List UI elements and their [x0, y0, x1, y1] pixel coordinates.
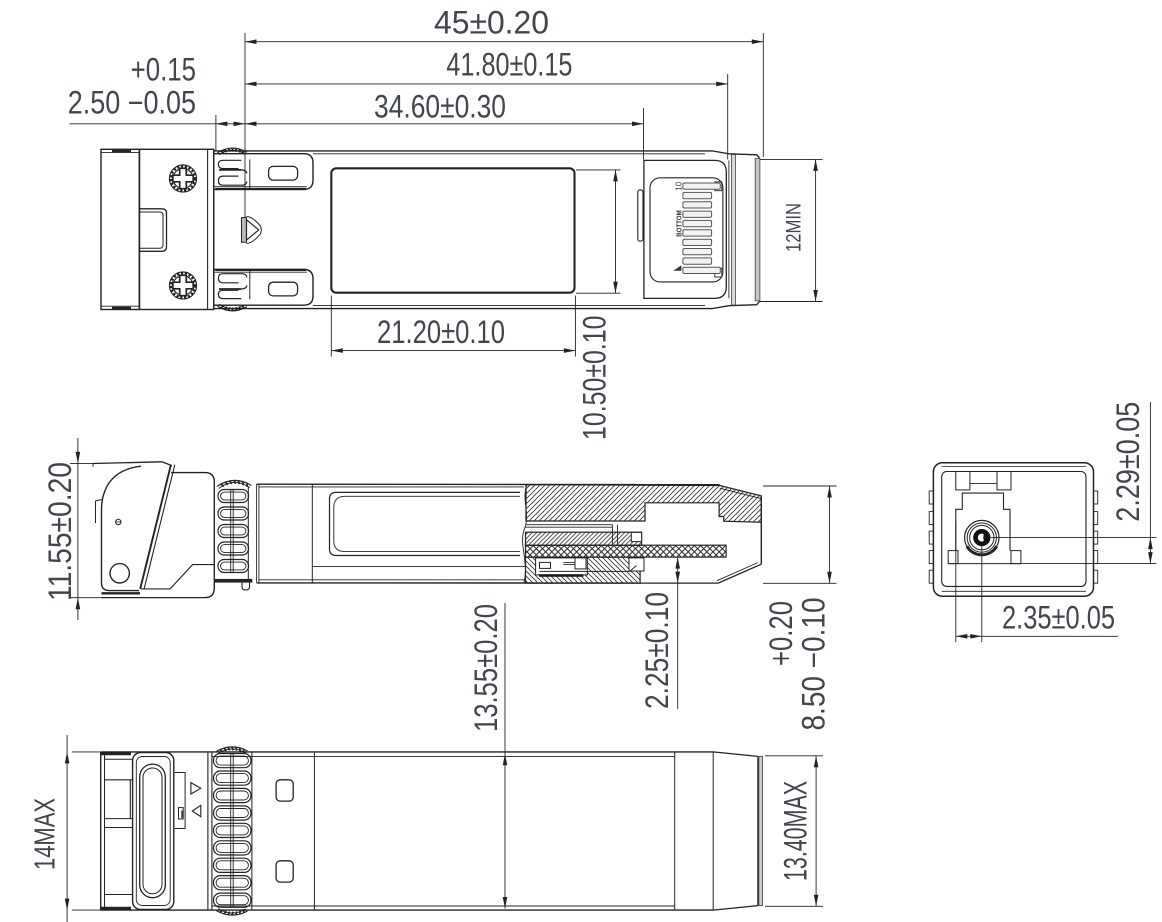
svg-text:10.50±0.10: 10.50±0.10	[577, 316, 613, 441]
svg-text:11.55±0.20: 11.55±0.20	[42, 462, 78, 601]
svg-text:8.50 −0.10: 8.50 −0.10	[796, 598, 832, 731]
svg-text:13.55±0.20: 13.55±0.20	[468, 604, 504, 732]
svg-text:+0.15: +0.15	[131, 51, 196, 87]
svg-text:12MIN: 12MIN	[783, 203, 806, 252]
svg-text:2.25±0.10: 2.25±0.10	[639, 592, 675, 709]
svg-text:2.29±0.05: 2.29±0.05	[1110, 402, 1146, 522]
svg-text:45±0.20: 45±0.20	[434, 5, 549, 41]
svg-text:21.20±0.10: 21.20±0.10	[377, 314, 505, 350]
svg-text:+0.20: +0.20	[763, 601, 799, 666]
svg-text:BOTTOM: BOTTOM	[677, 210, 684, 237]
svg-text:13.40MAX: 13.40MAX	[778, 781, 814, 881]
svg-text:14MAX: 14MAX	[30, 798, 62, 870]
svg-text:34.60±0.30: 34.60±0.30	[374, 89, 506, 125]
svg-text:41.80±0.15: 41.80±0.15	[446, 47, 572, 83]
svg-text:2.50 −0.05: 2.50 −0.05	[68, 84, 196, 120]
svg-text:2.35±0.05: 2.35±0.05	[1002, 600, 1115, 636]
svg-text:10: 10	[675, 181, 684, 191]
